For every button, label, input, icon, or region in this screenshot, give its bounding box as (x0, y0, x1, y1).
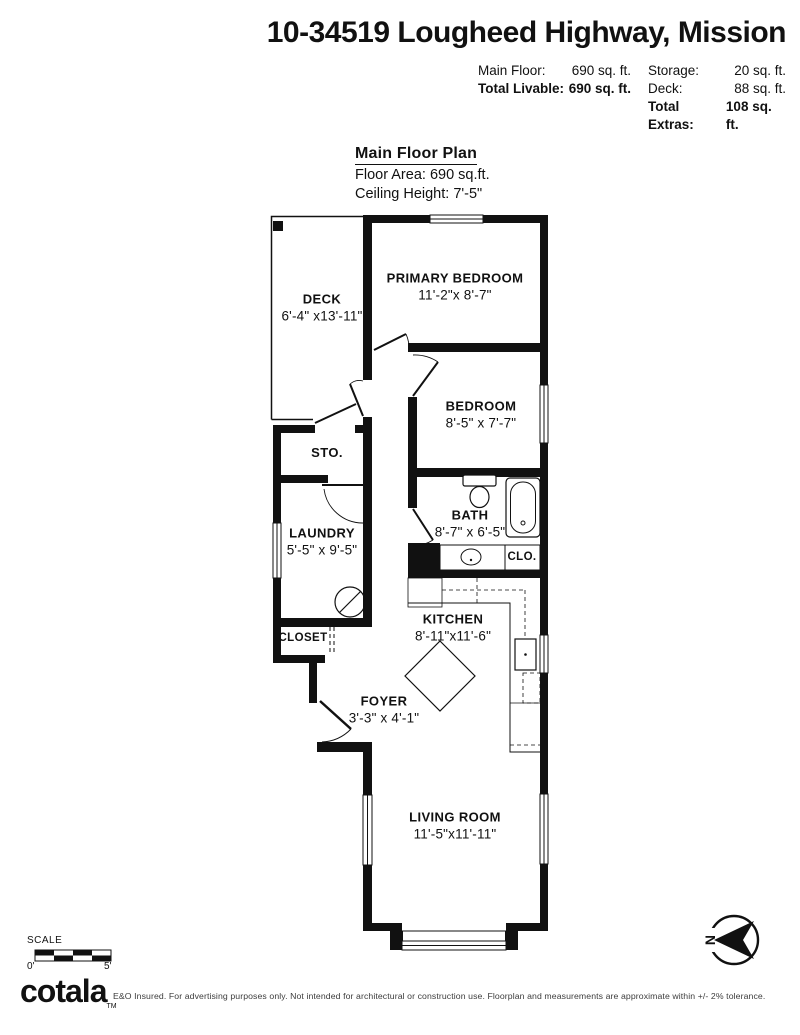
stat-storage-label: Storage: (648, 62, 699, 80)
stat-deck: Deck: 88 sq. ft. (648, 80, 786, 98)
cotala-logo-text: cotala (20, 973, 106, 1009)
stat-storage: Storage: 20 sq. ft. (648, 62, 786, 80)
window-bay (402, 941, 506, 950)
room-label-storage: STO. (311, 445, 343, 461)
plan-heading: Main Floor Plan (355, 145, 477, 165)
scale-label: SCALE (27, 935, 62, 946)
stat-total-livable: Total Livable: 690 sq. ft. (478, 80, 631, 98)
vanity-sink (440, 545, 505, 570)
window-top (430, 215, 483, 223)
stat-main-floor: Main Floor: 690 sq. ft. (478, 62, 631, 80)
door-hall-deck (350, 380, 363, 416)
door-bath (412, 509, 433, 546)
deck-corner-marker (273, 221, 283, 231)
window-laundry-left (273, 523, 281, 578)
window-living-right (540, 794, 548, 864)
stat-total-livable-label: Total Livable: (478, 80, 564, 98)
stats-column-extras: Storage: 20 sq. ft. Deck: 88 sq. ft. Tot… (648, 62, 786, 134)
stat-total-extras-label: Total Extras: (648, 98, 726, 134)
toilet-icon (463, 475, 496, 508)
scale-end-label: 5' (104, 961, 111, 972)
scale-start-label: 0' (27, 961, 34, 972)
room-label-deck: DECK 6'-4" x13'-11" (281, 292, 362, 325)
trademark-mark: TM (106, 1003, 116, 1010)
room-label-closet: CLOSET (278, 630, 327, 646)
bay-edges (402, 931, 506, 941)
plan-ceiling-height: Ceiling Height: 7'-5" (355, 186, 490, 203)
bathtub-icon (506, 478, 540, 537)
room-label-kitchen: KITCHEN 8'-11"x11'-6" (415, 612, 491, 645)
room-label-bath: BATH 8'-7" x 6'-5" (435, 508, 506, 541)
north-arrow: N (701, 916, 758, 964)
stat-main-floor-label: Main Floor: (478, 62, 546, 80)
cotala-logo: cotalaTM (20, 975, 117, 1023)
stat-total-extras-value: 108 sq. ft. (726, 98, 786, 134)
stat-total-extras: Total Extras: 108 sq. ft. (648, 98, 786, 134)
door-entry (320, 701, 351, 742)
door-closet-bifold (330, 627, 334, 655)
scale-bar (35, 950, 111, 961)
door-storage-deck (315, 404, 356, 423)
plan-floor-area: Floor Area: 690 sq.ft. (355, 167, 490, 184)
floorplan-page: N 10-34519 Lougheed Highway, Mission Mai… (0, 0, 800, 1035)
stat-deck-value: 88 sq. ft. (734, 80, 786, 98)
room-label-clo: CLO. (507, 549, 536, 565)
washer-icon (335, 587, 365, 617)
window-kitchen-right (540, 635, 548, 673)
plan-info: Main Floor Plan Floor Area: 690 sq.ft. C… (355, 145, 490, 202)
stat-main-floor-value: 690 sq. ft. (572, 62, 631, 80)
door-laundry (322, 485, 363, 523)
room-label-laundry: LAUNDRY 5'-5" x 9'-5" (287, 526, 358, 559)
stat-storage-value: 20 sq. ft. (734, 62, 786, 80)
page-title: 10-34519 Lougheed Highway, Mission (267, 16, 786, 50)
room-label-primary-bedroom: PRIMARY BEDROOM 11'-2"x 8'-7" (387, 271, 524, 304)
window-bedroom-right (540, 385, 548, 443)
stat-deck-label: Deck: (648, 80, 683, 98)
fridge-icon (515, 639, 536, 670)
door-bedroom (413, 355, 438, 396)
stat-total-livable-value: 690 sq. ft. (569, 80, 631, 98)
room-label-foyer: FOYER 3'-3" x 4'-1" (349, 694, 420, 727)
window-living-left (363, 795, 372, 865)
room-label-bedroom: BEDROOM 8'-5" x 7'-7" (446, 399, 517, 432)
north-arrow-pointer (714, 921, 754, 959)
disclaimer-text: E&O Insured. For advertising purposes on… (113, 991, 765, 1001)
room-label-living-room: LIVING ROOM 11'-5"x11'-11" (409, 810, 501, 843)
stats-column-livable: Main Floor: 690 sq. ft. Total Livable: 6… (478, 62, 631, 98)
door-primary-bedroom (374, 334, 409, 351)
